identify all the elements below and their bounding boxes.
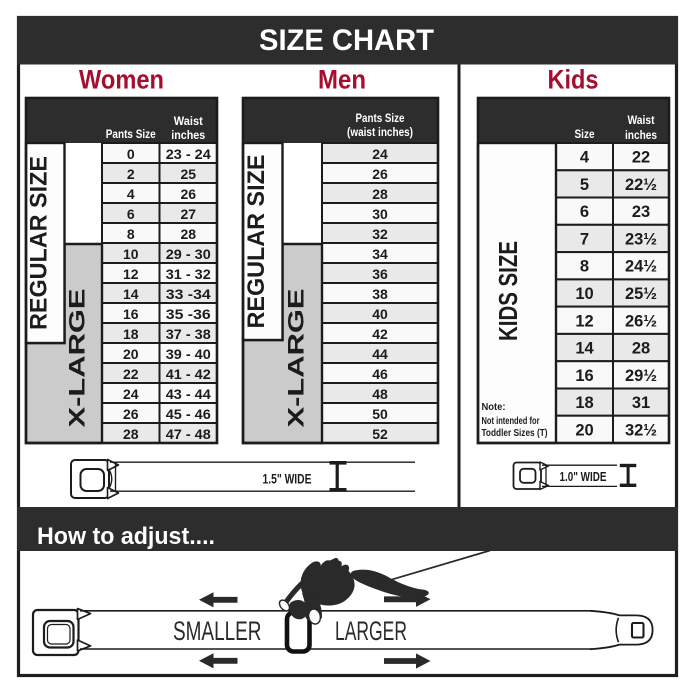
svg-text:38: 38 [372,286,388,302]
svg-text:18: 18 [575,394,593,412]
svg-text:39 - 40: 39 - 40 [166,346,211,362]
svg-text:12: 12 [575,312,593,330]
svg-text:7: 7 [580,231,589,249]
svg-text:36: 36 [372,266,388,282]
svg-text:6: 6 [127,206,135,222]
svg-text:LARGER: LARGER [335,616,407,646]
svg-text:1.5" WIDE: 1.5" WIDE [263,471,312,487]
svg-text:20: 20 [123,346,139,362]
svg-text:10: 10 [575,285,593,303]
svg-text:30: 30 [372,206,388,222]
svg-text:2: 2 [127,166,135,182]
svg-text:24: 24 [123,386,139,402]
svg-text:X-LARGE: X-LARGE [283,289,308,428]
svg-text:16: 16 [575,367,593,385]
svg-text:25½: 25½ [625,285,657,303]
svg-text:26: 26 [123,406,139,422]
svg-text:23 - 24: 23 - 24 [166,146,211,162]
svg-text:46: 46 [372,366,388,382]
svg-text:43 - 44: 43 - 44 [166,386,211,402]
svg-text:0: 0 [127,146,135,162]
svg-text:SMALLER: SMALLER [173,616,262,646]
svg-text:inches: inches [171,130,205,142]
svg-text:4: 4 [127,186,135,202]
svg-text:Waist: Waist [628,115,655,127]
svg-text:26½: 26½ [625,312,657,330]
svg-text:(waist inches): (waist inches) [347,127,413,139]
svg-text:28: 28 [372,186,388,202]
svg-text:14: 14 [123,286,139,302]
svg-text:14: 14 [575,340,594,358]
svg-text:How to adjust....: How to adjust.... [37,523,215,550]
svg-text:34: 34 [372,246,388,262]
svg-text:4: 4 [580,149,590,167]
svg-text:31: 31 [632,394,650,412]
svg-text:16: 16 [123,306,139,322]
svg-text:50: 50 [372,406,388,422]
svg-text:48: 48 [372,386,388,402]
svg-text:27: 27 [180,206,196,222]
svg-text:6: 6 [580,203,589,221]
svg-text:32½: 32½ [625,421,657,439]
svg-text:52: 52 [372,426,388,442]
svg-text:41 - 42: 41 - 42 [166,366,211,382]
svg-text:22½: 22½ [625,176,657,194]
svg-text:KIDS SIZE: KIDS SIZE [495,241,523,341]
svg-text:29½: 29½ [625,367,657,385]
svg-text:47 - 48: 47 - 48 [166,426,211,442]
svg-text:31 - 32: 31 - 32 [166,266,211,282]
svg-text:25: 25 [180,166,196,182]
svg-text:Pants Size: Pants Size [356,113,405,125]
svg-text:26: 26 [372,166,388,182]
svg-text:32: 32 [372,226,388,242]
svg-text:X-LARGE: X-LARGE [64,289,89,428]
svg-text:8: 8 [127,226,135,242]
svg-text:Women: Women [79,65,164,95]
svg-text:20: 20 [575,421,593,439]
svg-text:REGULAR SIZE: REGULAR SIZE [243,155,270,329]
svg-text:Pants Size: Pants Size [106,129,156,141]
svg-text:5: 5 [580,176,589,194]
svg-text:Size: Size [575,129,595,141]
svg-text:Note:: Note: [482,401,506,413]
svg-text:37 - 38: 37 - 38 [166,326,211,342]
svg-text:22: 22 [123,366,139,382]
svg-text:35 -36: 35 -36 [166,306,211,322]
svg-text:28: 28 [180,226,196,242]
svg-text:33 -34: 33 -34 [166,286,211,302]
svg-text:Waist: Waist [174,116,203,128]
svg-text:42: 42 [372,326,388,342]
svg-text:45 - 46: 45 - 46 [166,406,211,422]
svg-text:Kids: Kids [548,65,599,95]
svg-text:26: 26 [180,186,196,202]
svg-text:22: 22 [632,149,650,167]
svg-text:24: 24 [372,146,388,162]
svg-text:23: 23 [632,203,650,221]
svg-text:Men: Men [318,65,366,95]
svg-text:44: 44 [372,346,388,362]
svg-text:28: 28 [632,340,650,358]
svg-text:SIZE CHART: SIZE CHART [259,24,434,57]
svg-text:12: 12 [123,266,139,282]
svg-text:1.0" WIDE: 1.0" WIDE [560,470,607,484]
svg-text:Not intended for: Not intended for [482,415,540,427]
svg-text:23½: 23½ [625,231,657,249]
svg-text:40: 40 [372,306,388,322]
svg-text:inches: inches [625,130,657,142]
svg-text:28: 28 [123,426,139,442]
svg-text:10: 10 [123,246,139,262]
svg-text:18: 18 [123,326,139,342]
svg-text:REGULAR SIZE: REGULAR SIZE [25,156,52,330]
svg-text:Toddler Sizes (T): Toddler Sizes (T) [482,427,548,439]
svg-text:24½: 24½ [625,258,657,276]
svg-text:8: 8 [580,258,589,276]
svg-text:29 - 30: 29 - 30 [166,246,211,262]
